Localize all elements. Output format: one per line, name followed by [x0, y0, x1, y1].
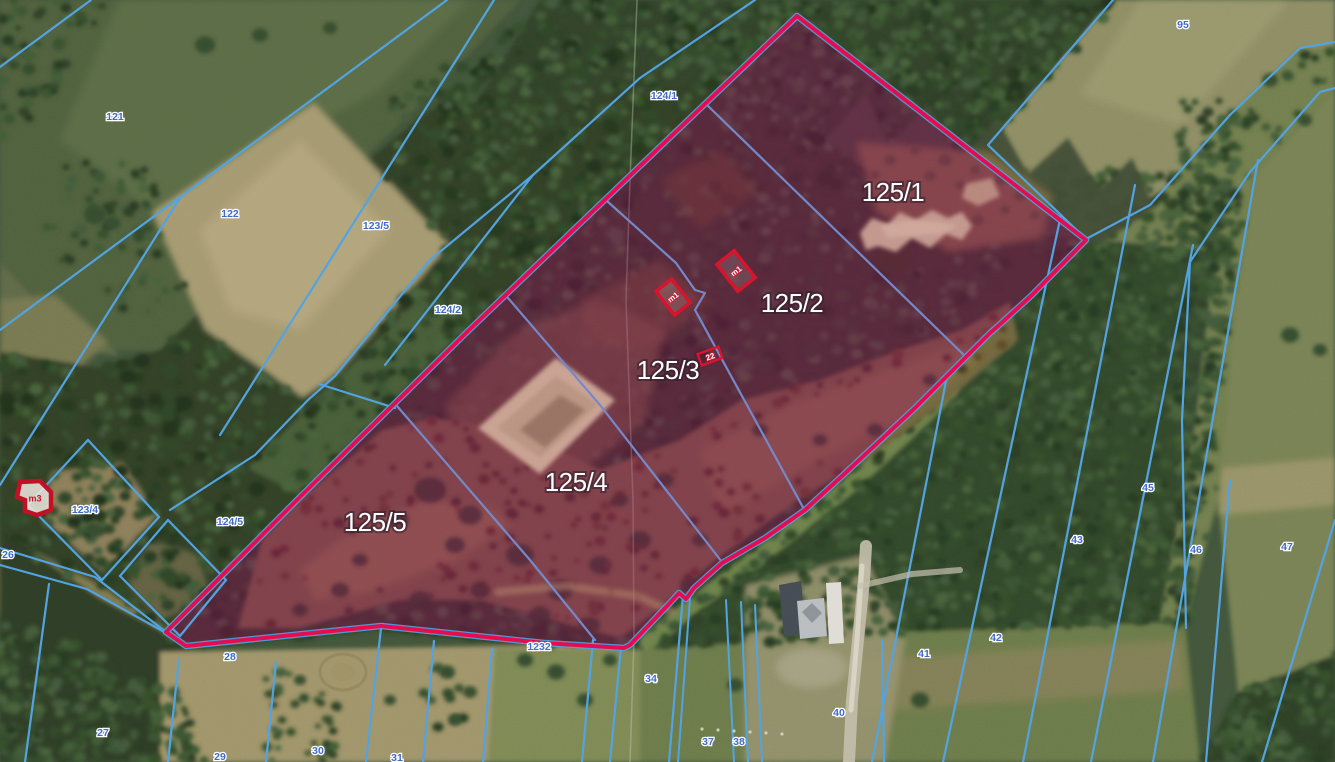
svg-text:38: 38 [733, 736, 745, 748]
svg-text:31: 31 [391, 752, 403, 762]
svg-text:95: 95 [1177, 19, 1189, 31]
svg-text:28: 28 [224, 651, 236, 663]
svg-text:125/1: 125/1 [862, 177, 925, 207]
svg-text:26: 26 [2, 549, 14, 561]
svg-text:125/4: 125/4 [545, 467, 608, 497]
svg-text:40: 40 [833, 707, 845, 719]
svg-text:125/5: 125/5 [344, 507, 407, 537]
svg-text:47: 47 [1281, 541, 1293, 553]
svg-text:27: 27 [97, 727, 109, 739]
svg-text:125/3: 125/3 [637, 355, 700, 385]
svg-text:124/5: 124/5 [217, 516, 243, 528]
svg-text:122: 122 [221, 208, 239, 220]
svg-text:29: 29 [214, 751, 226, 762]
svg-text:123/4: 123/4 [72, 504, 98, 516]
svg-text:121: 121 [106, 111, 124, 123]
svg-text:37: 37 [702, 736, 714, 748]
svg-text:124/1: 124/1 [651, 90, 677, 102]
svg-text:124/2: 124/2 [435, 304, 461, 316]
svg-text:46: 46 [1190, 544, 1202, 556]
svg-text:123/5: 123/5 [363, 220, 389, 232]
svg-text:42: 42 [990, 632, 1002, 644]
svg-text:30: 30 [312, 745, 324, 757]
svg-text:45: 45 [1142, 482, 1154, 494]
svg-text:34: 34 [645, 673, 657, 685]
svg-text:125/2: 125/2 [761, 288, 824, 318]
svg-text:43: 43 [1071, 534, 1083, 546]
svg-text:41: 41 [918, 648, 930, 660]
